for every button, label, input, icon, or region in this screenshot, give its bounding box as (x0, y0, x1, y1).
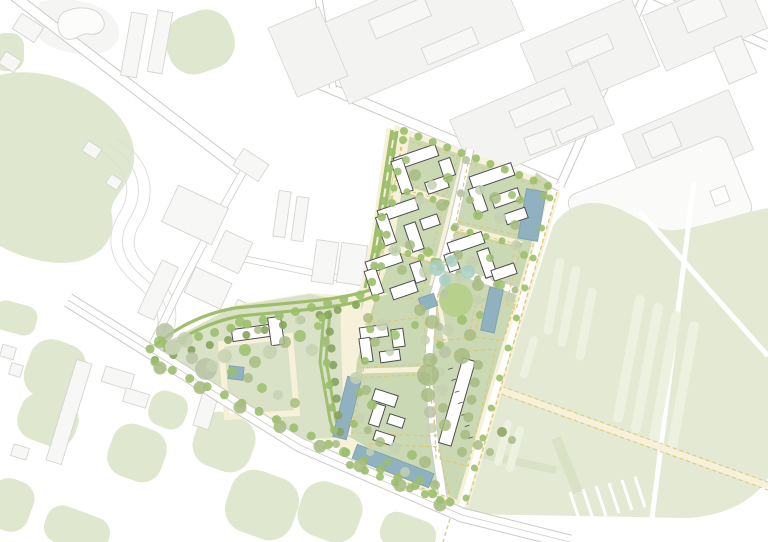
street-tree (275, 311, 284, 320)
street-tree (307, 432, 316, 441)
context-building (9, 363, 24, 378)
street-tree (513, 315, 520, 322)
tree (475, 185, 485, 195)
lawn-circle (439, 283, 473, 317)
tree (409, 169, 421, 181)
street-tree (399, 136, 407, 144)
tree (516, 196, 524, 204)
street-tree (242, 331, 250, 339)
tree (419, 456, 431, 468)
street-tree (168, 366, 177, 375)
street-tree (289, 423, 298, 432)
street-tree (486, 160, 494, 168)
street-tree (334, 306, 342, 314)
street-tree (380, 197, 388, 205)
street-tree (332, 394, 340, 402)
tree (494, 212, 506, 224)
street-tree (385, 164, 393, 172)
tree (320, 337, 330, 347)
tree (439, 419, 451, 431)
street-tree (472, 155, 480, 163)
street-tree (467, 229, 474, 236)
tree (263, 345, 277, 359)
tree (436, 384, 448, 396)
tree (257, 383, 267, 393)
tree (411, 321, 419, 329)
tree (390, 330, 400, 340)
street-tree (379, 243, 386, 250)
tree (424, 406, 436, 418)
street-tree (390, 132, 398, 140)
street-tree (462, 156, 470, 164)
tree (486, 254, 494, 262)
street-tree (376, 473, 384, 481)
street-tree (185, 374, 194, 383)
tree (473, 295, 483, 305)
tree (454, 348, 470, 364)
tree (476, 311, 484, 319)
tree (505, 293, 515, 303)
tree (314, 322, 322, 330)
tree (421, 388, 435, 402)
street-tree (220, 390, 229, 399)
street-tree (521, 285, 528, 292)
park-area (0, 298, 40, 338)
street-tree (457, 447, 467, 457)
street-tree (255, 407, 264, 416)
street-tree (391, 479, 399, 487)
tree (350, 372, 362, 384)
tree (239, 344, 251, 356)
tree (389, 244, 401, 256)
tree (243, 373, 253, 383)
tree (414, 304, 426, 316)
street-tree (291, 307, 300, 316)
street-tree (154, 362, 167, 375)
tree (249, 356, 261, 368)
tree (457, 315, 467, 325)
street-tree (356, 291, 365, 300)
street-tree (446, 498, 455, 507)
tree (290, 398, 300, 408)
street-tree (515, 171, 523, 179)
street-tree (530, 255, 537, 262)
context-building (273, 190, 291, 237)
tree (438, 403, 448, 413)
street-tree (388, 199, 396, 207)
street-tree (279, 321, 287, 329)
site-plan-canvas (0, 0, 768, 542)
tree (497, 427, 507, 437)
tree (355, 413, 365, 423)
street-tree (326, 328, 334, 336)
street-tree (361, 357, 369, 365)
street-tree (418, 254, 425, 261)
tree (427, 423, 437, 433)
tree (206, 360, 218, 372)
street-tree (372, 294, 380, 302)
street-tree (471, 465, 478, 472)
context-building (121, 12, 148, 78)
tree (294, 330, 306, 342)
tree (386, 348, 394, 356)
tree (306, 344, 318, 356)
tree (508, 436, 516, 444)
street-tree (323, 299, 332, 308)
tree (520, 251, 528, 259)
tree (218, 349, 232, 363)
tree (511, 240, 521, 250)
tree (540, 192, 548, 200)
street-tree (441, 289, 449, 297)
tree (389, 442, 401, 454)
street-tree (538, 225, 545, 232)
street-tree (224, 336, 232, 344)
street-tree (530, 177, 538, 185)
tree (429, 260, 445, 276)
tree (361, 385, 371, 395)
tree (370, 337, 380, 347)
street-tree (544, 182, 552, 190)
street-tree (346, 461, 354, 469)
tree (366, 448, 374, 456)
street-tree (226, 324, 235, 333)
street-tree (368, 278, 376, 286)
tree (400, 467, 410, 477)
street-tree (391, 185, 398, 192)
street-tree (406, 484, 414, 492)
street-tree (387, 148, 395, 156)
street-tree (383, 181, 391, 189)
street-tree (443, 144, 451, 152)
tree (436, 199, 448, 211)
tree (295, 315, 305, 325)
street-tree (463, 412, 473, 422)
street-tree (394, 168, 402, 176)
street-tree (210, 328, 219, 337)
street-tree (146, 345, 155, 354)
street-tree (436, 496, 444, 504)
tree (464, 329, 476, 341)
tree (427, 180, 437, 190)
tree (273, 390, 283, 400)
tree (405, 240, 415, 250)
tree (473, 440, 483, 450)
street-tree (501, 166, 509, 174)
context-building (211, 230, 253, 273)
street-tree (400, 127, 408, 135)
street-tree (325, 381, 333, 389)
context-building (122, 388, 149, 408)
tree (186, 352, 198, 364)
tree (473, 210, 483, 220)
street-tree (414, 133, 422, 141)
tree (363, 313, 373, 323)
context-building (101, 366, 134, 390)
street-tree (194, 332, 203, 341)
street-tree (361, 467, 369, 475)
tree (364, 426, 372, 434)
street-tree (499, 237, 506, 244)
tree (472, 279, 484, 291)
street-tree (483, 233, 490, 240)
tree (495, 280, 505, 290)
park-area (101, 418, 172, 488)
tree (439, 346, 451, 358)
park-blob-west (0, 72, 134, 263)
street-tree (307, 303, 316, 312)
tree (425, 315, 439, 329)
street-tree (314, 440, 327, 453)
street-tree (366, 325, 374, 333)
tree (235, 317, 245, 327)
tree (227, 367, 237, 377)
context-building (291, 196, 309, 241)
street-tree (318, 314, 326, 322)
park-area (218, 463, 306, 542)
tree (375, 437, 385, 447)
street-tree (330, 426, 338, 434)
street-tree (194, 381, 207, 394)
street-tree (479, 435, 486, 442)
street-tree (457, 189, 465, 197)
tree (486, 448, 494, 456)
tree (489, 192, 501, 204)
street-tree (430, 196, 437, 203)
tree (407, 450, 417, 460)
tree (402, 156, 410, 164)
tree (397, 265, 407, 275)
street-tree (234, 401, 247, 414)
tree (417, 364, 439, 386)
tree (254, 326, 262, 334)
street-tree (377, 262, 385, 270)
street-tree (339, 295, 348, 304)
street-tree (352, 301, 360, 309)
tree (165, 339, 181, 355)
tree (367, 400, 377, 410)
park-area (291, 475, 368, 542)
street-tree (463, 495, 470, 502)
park-area (376, 508, 441, 542)
street-tree (451, 225, 458, 232)
tree (279, 336, 291, 348)
street-tree (512, 287, 519, 294)
tree (416, 476, 424, 484)
context-building (0, 344, 16, 360)
street-tree (375, 229, 383, 237)
street-tree (376, 465, 385, 474)
tree (510, 220, 520, 230)
tree (332, 440, 340, 448)
street-tree (405, 250, 412, 257)
street-tree (274, 420, 287, 433)
street-tree (505, 345, 512, 352)
street-tree (383, 231, 391, 239)
tree (339, 447, 349, 457)
tree (423, 247, 433, 257)
tree (420, 335, 430, 345)
street-tree (428, 489, 437, 498)
park-area (144, 387, 192, 434)
street-tree (458, 149, 466, 157)
masterplan-map (0, 0, 768, 542)
street-tree (421, 490, 429, 498)
street-tree (259, 315, 268, 324)
street-tree (328, 404, 336, 412)
context-building (11, 444, 30, 460)
tree (415, 195, 425, 205)
context-building (162, 185, 229, 244)
tree (446, 255, 458, 267)
tree (439, 274, 451, 286)
tree (430, 480, 440, 490)
park-area (39, 501, 114, 542)
street-tree (467, 395, 477, 405)
tree (442, 324, 454, 336)
street-tree (378, 213, 386, 221)
park-area (0, 473, 40, 537)
tree (154, 336, 166, 348)
street-tree (323, 359, 331, 367)
tree (376, 319, 388, 331)
street-tree (460, 430, 470, 440)
tree (508, 191, 516, 199)
street-tree (496, 375, 503, 382)
tree (443, 173, 453, 183)
street-tree (470, 377, 480, 387)
street-tree (206, 341, 214, 349)
street-tree (473, 360, 483, 370)
street-tree (404, 188, 411, 195)
tree (461, 265, 475, 279)
tree (384, 458, 392, 466)
street-tree (488, 405, 495, 412)
street-tree (334, 411, 342, 419)
tree (466, 196, 474, 204)
street-tree (429, 138, 437, 146)
